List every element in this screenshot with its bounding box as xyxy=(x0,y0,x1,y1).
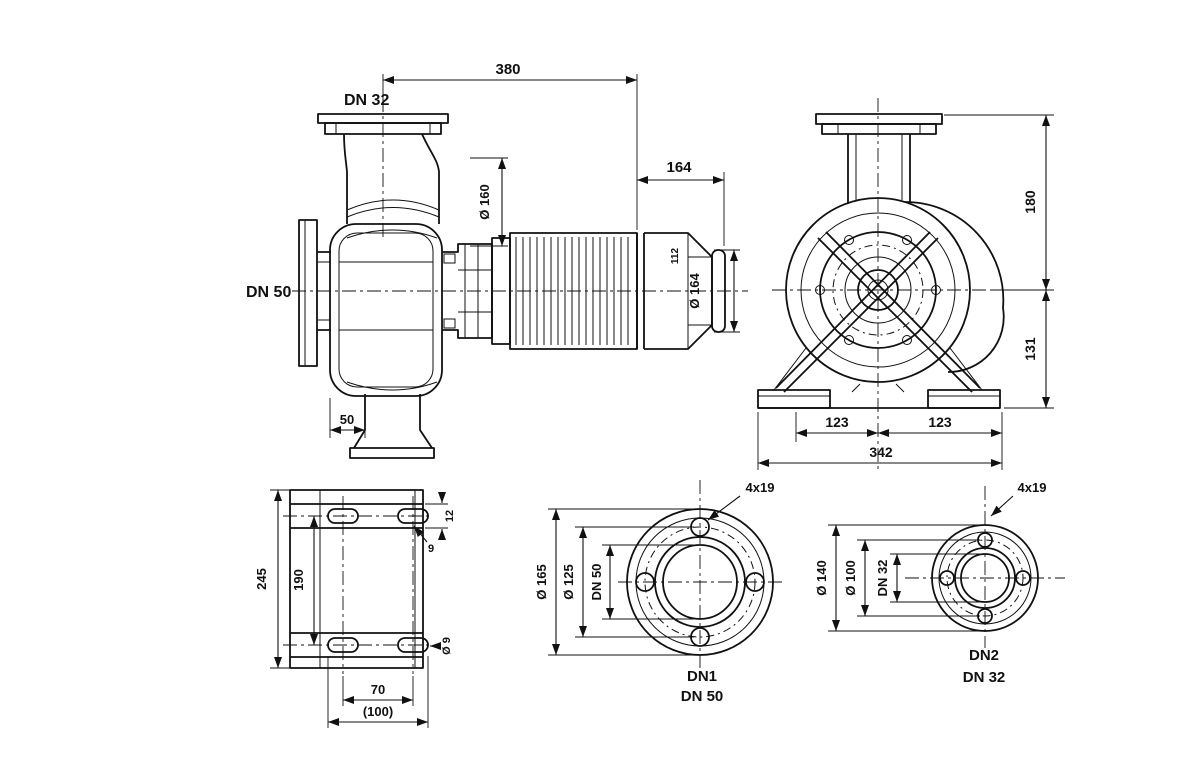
pump-dimension-drawing: DN 50 50 xyxy=(0,0,1200,773)
suction-flange-side xyxy=(299,220,331,366)
dim-motor-detail: 112 xyxy=(670,247,681,264)
front-volute xyxy=(786,198,1004,382)
dim-foot-span-right: 123 xyxy=(928,414,952,430)
dim-discharge-bolt-circle: Ø 100 xyxy=(843,560,858,595)
suction-port-size: DN 50 xyxy=(681,688,724,705)
dim-hole-diameter: Ø 9 xyxy=(441,637,453,655)
discharge-port-label: DN2 xyxy=(969,647,999,664)
front-discharge-flange xyxy=(816,114,942,204)
dim-suction-bolt-circle: Ø 125 xyxy=(561,564,576,599)
discharge-label: DN 32 xyxy=(344,92,389,109)
discharge-bolt-holes-label: 4x19 xyxy=(1018,480,1047,495)
dim-slot-row-spacing: 190 xyxy=(291,569,306,591)
volute-spiral xyxy=(905,202,1004,372)
dim-suction-nominal: DN 50 xyxy=(589,564,604,601)
dim-bolt-spacing: 70 xyxy=(371,682,385,697)
dim-overall-width: 342 xyxy=(869,444,893,460)
dim-motor-diameter: Ø 164 xyxy=(687,273,702,309)
drawing-canvas: DN 50 50 xyxy=(0,0,1200,773)
dim-foot-offset: 50 xyxy=(340,412,354,427)
discharge-pipe xyxy=(344,134,439,224)
dim-height-below-axis: 131 xyxy=(1022,337,1038,361)
dim-foot-span-left: 123 xyxy=(825,414,849,430)
dim-overall-length: 380 xyxy=(495,61,520,78)
dim-adapter-diameter: Ø 160 xyxy=(477,184,492,219)
suction-port-label: DN1 xyxy=(687,668,717,685)
dim-discharge-nominal: DN 32 xyxy=(875,560,890,597)
dim-height-above-axis: 180 xyxy=(1022,190,1038,214)
foot-plan-view: 245 190 12 9 Ø 9 70 (100) xyxy=(254,490,456,728)
dim-discharge-outer-diameter: Ø 140 xyxy=(814,560,829,595)
suction-bolt-holes-label: 4x19 xyxy=(746,480,775,495)
side-view: DN 50 50 xyxy=(246,61,748,458)
pump-casing xyxy=(330,224,442,396)
dim-plan-overall-width: (100) xyxy=(363,704,393,719)
dim-slot-height: 12 xyxy=(444,510,456,522)
discharge-flange-view: Ø 140 Ø 100 DN 32 4x19 DN2 DN 32 xyxy=(814,480,1065,686)
front-view: 180 131 123 123 342 xyxy=(758,98,1054,470)
support-foot xyxy=(350,394,434,458)
suction-label: DN 50 xyxy=(246,284,291,301)
dim-motor-length: 164 xyxy=(666,159,692,176)
dim-plan-overall-length: 245 xyxy=(254,568,269,590)
dim-slot-width: 9 xyxy=(428,543,434,555)
dim-suction-outer-diameter: Ø 165 xyxy=(534,564,549,599)
discharge-port-size: DN 32 xyxy=(963,669,1006,686)
suction-flange-view: Ø 165 Ø 125 DN 50 4x19 DN1 DN 50 xyxy=(534,480,782,705)
